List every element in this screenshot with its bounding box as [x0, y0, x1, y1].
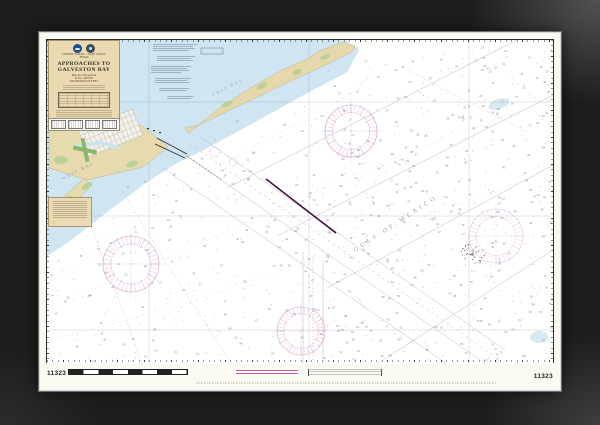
svg-text:15: 15	[200, 157, 203, 161]
svg-text:19: 19	[109, 241, 112, 245]
svg-text:62: 62	[400, 326, 403, 330]
svg-text:35: 35	[415, 145, 418, 149]
svg-text:38: 38	[280, 264, 283, 268]
svg-text:56: 56	[271, 351, 274, 355]
svg-text:43: 43	[362, 232, 365, 236]
svg-text:19: 19	[64, 300, 67, 304]
svg-text:23: 23	[179, 215, 182, 219]
svg-text:42: 42	[395, 190, 398, 194]
svg-text:27: 27	[492, 81, 495, 85]
svg-text:25: 25	[409, 80, 412, 84]
svg-text:53: 53	[313, 307, 316, 311]
svg-text:17: 17	[355, 46, 358, 50]
publication-note	[308, 369, 382, 376]
svg-text:31: 31	[141, 305, 144, 309]
svg-text:25: 25	[111, 285, 114, 289]
svg-text:17: 17	[365, 60, 368, 64]
svg-text:21: 21	[504, 49, 507, 53]
svg-text:44: 44	[543, 195, 546, 199]
svg-text:65: 65	[381, 354, 384, 358]
svg-text:32: 32	[267, 224, 270, 228]
svg-text:70: 70	[465, 351, 468, 355]
svg-text:34: 34	[278, 245, 281, 249]
svg-text:26: 26	[145, 248, 148, 252]
svg-text:41: 41	[523, 171, 526, 175]
svg-text:49: 49	[268, 307, 271, 311]
svg-text:62: 62	[340, 350, 343, 354]
svg-text:40: 40	[502, 166, 505, 170]
svg-text:53: 53	[386, 258, 389, 262]
svg-text:29: 29	[245, 228, 248, 232]
svg-text:45: 45	[421, 189, 424, 193]
svg-text:34: 34	[424, 134, 427, 138]
svg-text:30: 30	[357, 148, 360, 152]
svg-text:68: 68	[434, 325, 437, 329]
svg-text:59: 59	[387, 317, 390, 321]
svg-text:65: 65	[379, 339, 382, 343]
svg-text:58: 58	[453, 294, 456, 298]
svg-text:50: 50	[433, 217, 436, 221]
svg-text:30: 30	[103, 337, 106, 341]
svg-text:37: 37	[220, 263, 223, 267]
svg-text:38: 38	[326, 218, 329, 222]
svg-text:31: 31	[522, 85, 525, 89]
svg-text:42: 42	[224, 313, 227, 317]
svg-text:55: 55	[391, 267, 394, 271]
svg-text:47: 47	[255, 318, 258, 322]
svg-text:38: 38	[501, 138, 504, 142]
svg-text:39: 39	[285, 237, 288, 241]
svg-text:58: 58	[382, 295, 385, 299]
svg-text:51: 51	[328, 306, 331, 310]
svg-text:36: 36	[328, 203, 331, 207]
svg-text:42: 42	[425, 190, 428, 194]
svg-text:32: 32	[100, 332, 103, 336]
tide-diagram-box	[68, 120, 83, 129]
svg-text:35: 35	[491, 130, 494, 134]
chart-number-left: 11323	[47, 370, 66, 377]
svg-text:33: 33	[236, 237, 239, 241]
svg-text:37: 37	[224, 299, 227, 303]
svg-text:35: 35	[122, 343, 125, 347]
svg-text:63: 63	[480, 319, 483, 323]
svg-text:37: 37	[408, 169, 411, 173]
svg-text:26: 26	[483, 64, 486, 68]
svg-text:21: 21	[246, 157, 249, 161]
svg-text:21: 21	[134, 230, 137, 234]
svg-text:64: 64	[519, 318, 522, 322]
chart-number-right: 11323	[534, 373, 553, 380]
svg-text:61: 61	[545, 285, 548, 289]
svg-text:40: 40	[398, 163, 401, 167]
svg-text:33: 33	[192, 271, 195, 275]
svg-text:36: 36	[366, 139, 369, 143]
svg-text:38: 38	[542, 145, 545, 149]
svg-text:29: 29	[546, 70, 549, 74]
svg-text:35: 35	[345, 193, 348, 197]
svg-text:41: 41	[396, 183, 399, 187]
svg-text:17: 17	[50, 274, 53, 278]
svg-text:37: 37	[265, 230, 268, 234]
svg-text:50: 50	[293, 312, 296, 316]
svg-text:25: 25	[481, 68, 484, 72]
border-ticks-right	[551, 40, 553, 362]
svg-text:47: 47	[361, 219, 364, 223]
svg-text:37: 37	[390, 179, 393, 183]
svg-text:29: 29	[241, 240, 244, 244]
svg-text:25: 25	[455, 65, 458, 69]
svg-text:37: 37	[415, 153, 418, 157]
svg-text:58: 58	[421, 269, 424, 273]
svg-text:62: 62	[529, 310, 532, 314]
svg-text:29: 29	[480, 119, 483, 123]
svg-text:33: 33	[199, 283, 202, 287]
svg-text:19: 19	[249, 169, 252, 173]
svg-text:59: 59	[498, 269, 501, 273]
svg-text:37: 37	[182, 288, 185, 292]
svg-text:20: 20	[55, 312, 58, 316]
svg-text:30: 30	[309, 191, 312, 195]
svg-text:28: 28	[428, 76, 431, 80]
svg-text:41: 41	[469, 192, 472, 196]
svg-text:40: 40	[154, 349, 157, 353]
svg-text:28: 28	[305, 153, 308, 157]
svg-text:39: 39	[243, 279, 246, 283]
svg-text:44: 44	[531, 200, 534, 204]
svg-text:62: 62	[440, 326, 443, 330]
svg-text:33: 33	[308, 195, 311, 199]
svg-text:47: 47	[462, 232, 465, 236]
svg-text:27: 27	[386, 109, 389, 113]
svg-text:47: 47	[452, 203, 455, 207]
svg-text:60: 60	[341, 328, 344, 332]
chart-neatline: 4538652224323565226128222718426265325935…	[46, 39, 554, 363]
svg-text:17: 17	[338, 92, 341, 96]
svg-text:36: 36	[379, 138, 382, 142]
svg-text:23: 23	[252, 151, 255, 155]
svg-text:19: 19	[221, 169, 224, 173]
svg-text:18: 18	[152, 193, 155, 197]
margin-note-text	[53, 201, 87, 218]
svg-text:30: 30	[446, 117, 449, 121]
svg-text:37: 37	[359, 162, 362, 166]
svg-text:21: 21	[190, 187, 193, 191]
svg-text:27: 27	[159, 281, 162, 285]
svg-text:53: 53	[495, 240, 498, 244]
svg-text:29: 29	[536, 76, 539, 80]
svg-text:55: 55	[453, 274, 456, 278]
svg-text:61: 61	[357, 349, 360, 353]
svg-text:23: 23	[402, 65, 405, 69]
svg-text:33: 33	[355, 176, 358, 180]
svg-text:18: 18	[223, 174, 226, 178]
svg-text:29: 29	[348, 141, 351, 145]
svg-text:55: 55	[344, 314, 347, 318]
svg-text:71: 71	[491, 342, 494, 346]
svg-text:58: 58	[530, 295, 533, 299]
svg-text:54: 54	[320, 332, 323, 336]
svg-text:46: 46	[350, 255, 353, 259]
svg-text:56: 56	[351, 330, 354, 334]
svg-text:46: 46	[498, 196, 501, 200]
svg-text:43: 43	[327, 231, 330, 235]
svg-text:42: 42	[458, 179, 461, 183]
commerce-seal-icon	[86, 44, 95, 53]
svg-text:32: 32	[451, 113, 454, 117]
tide-diagram-box	[102, 120, 117, 129]
svg-text:35: 35	[416, 133, 419, 137]
svg-text:30: 30	[342, 156, 345, 160]
svg-text:15: 15	[80, 254, 83, 258]
svg-text:24: 24	[405, 95, 408, 99]
svg-text:38: 38	[391, 152, 394, 156]
svg-text:44: 44	[445, 196, 448, 200]
svg-text:58: 58	[414, 276, 417, 280]
svg-text:34: 34	[472, 126, 475, 130]
svg-text:35: 35	[394, 161, 397, 165]
svg-text:25: 25	[479, 94, 482, 98]
svg-text:37: 37	[304, 238, 307, 242]
agency-logos	[49, 44, 119, 53]
svg-text:23: 23	[151, 226, 154, 230]
svg-text:33: 33	[395, 120, 398, 124]
svg-text:32: 32	[485, 125, 488, 129]
svg-text:27: 27	[349, 117, 352, 121]
svg-text:53: 53	[317, 308, 320, 312]
svg-text:57: 57	[427, 263, 430, 267]
svg-text:53: 53	[398, 248, 401, 252]
svg-text:35: 35	[404, 145, 407, 149]
svg-text:11: 11	[126, 185, 129, 189]
svg-text:65: 65	[488, 323, 491, 327]
svg-text:48: 48	[343, 272, 346, 276]
svg-text:45: 45	[450, 209, 453, 213]
svg-text:45: 45	[229, 327, 232, 331]
svg-text:20: 20	[66, 295, 69, 299]
svg-text:34: 34	[491, 110, 494, 114]
svg-text:26: 26	[377, 75, 380, 79]
svg-text:40: 40	[152, 338, 155, 342]
tide-diagram-panel	[48, 118, 120, 131]
svg-text:40: 40	[288, 263, 291, 267]
svg-text:59: 59	[459, 283, 462, 287]
svg-text:37: 37	[132, 337, 135, 341]
svg-text:37: 37	[331, 213, 334, 217]
svg-text:35: 35	[406, 159, 409, 163]
svg-text:22: 22	[394, 68, 397, 72]
svg-text:33: 33	[410, 129, 413, 133]
svg-text:30: 30	[511, 101, 514, 105]
svg-text:25: 25	[231, 182, 234, 186]
svg-text:23: 23	[481, 46, 484, 50]
svg-text:28: 28	[343, 128, 346, 132]
svg-text:59: 59	[449, 291, 452, 295]
svg-text:42: 42	[414, 181, 417, 185]
svg-text:45: 45	[403, 187, 406, 191]
svg-text:24: 24	[482, 56, 485, 60]
svg-text:64: 64	[532, 302, 535, 306]
svg-text:14: 14	[51, 293, 54, 297]
svg-text:43: 43	[174, 350, 177, 354]
svg-text:23: 23	[494, 66, 497, 70]
svg-text:59: 59	[352, 338, 355, 342]
svg-text:50: 50	[235, 336, 238, 340]
svg-text:49: 49	[436, 222, 439, 226]
svg-text:56: 56	[478, 261, 481, 265]
svg-text:33: 33	[542, 114, 545, 118]
svg-text:17: 17	[133, 225, 136, 229]
chart-map: 4538652224323565226128222718426265325935…	[47, 40, 553, 364]
svg-text:56: 56	[507, 251, 510, 255]
svg-text:64: 64	[483, 297, 486, 301]
svg-text:45: 45	[529, 188, 532, 192]
svg-text:60: 60	[411, 283, 414, 287]
svg-text:47: 47	[196, 352, 199, 356]
margin-note-box	[48, 197, 92, 227]
svg-text:30: 30	[397, 96, 400, 100]
svg-text:19: 19	[440, 58, 443, 62]
svg-text:44: 44	[304, 270, 307, 274]
svg-text:53: 53	[348, 289, 351, 293]
svg-text:32: 32	[462, 117, 465, 121]
svg-text:56: 56	[503, 241, 506, 245]
svg-text:63: 63	[498, 319, 501, 323]
svg-text:33: 33	[295, 183, 298, 187]
svg-text:29: 29	[543, 80, 546, 84]
svg-text:49: 49	[461, 223, 464, 227]
svg-text:41: 41	[144, 354, 147, 358]
svg-text:45: 45	[370, 213, 373, 217]
svg-text:46: 46	[416, 224, 419, 228]
svg-text:39: 39	[349, 203, 352, 207]
svg-text:21: 21	[528, 56, 531, 60]
svg-text:21: 21	[167, 218, 170, 222]
svg-text:38: 38	[410, 150, 413, 154]
svg-text:22: 22	[321, 114, 324, 118]
svg-text:13: 13	[173, 173, 176, 177]
border-ticks-bottom	[47, 360, 553, 362]
noaa-logo-icon	[73, 44, 82, 53]
tide-diagram-box	[51, 120, 66, 129]
svg-text:43: 43	[410, 185, 413, 189]
svg-text:47: 47	[438, 230, 441, 234]
svg-text:40: 40	[401, 158, 404, 162]
scale-bar	[68, 369, 188, 375]
svg-text:30: 30	[341, 173, 344, 177]
svg-text:18: 18	[175, 199, 178, 203]
svg-text:23: 23	[540, 65, 543, 69]
svg-text:43: 43	[349, 236, 352, 240]
svg-text:32: 32	[100, 321, 103, 325]
svg-text:27: 27	[468, 88, 471, 92]
svg-text:37: 37	[292, 215, 295, 219]
svg-text:45: 45	[525, 178, 528, 182]
svg-text:65: 65	[511, 328, 514, 332]
state-line: TEXAS	[49, 56, 119, 59]
svg-text:45: 45	[377, 214, 380, 218]
svg-text:30: 30	[301, 199, 304, 203]
svg-text:22: 22	[301, 129, 304, 133]
svg-text:56: 56	[470, 280, 473, 284]
svg-text:38: 38	[153, 327, 156, 331]
svg-text:66: 66	[539, 310, 542, 314]
svg-text:31: 31	[470, 116, 473, 120]
svg-text:55: 55	[396, 258, 399, 262]
svg-text:69: 69	[522, 354, 525, 358]
chart-paper: 4538652224323565226128222718426265325935…	[40, 33, 560, 390]
svg-text:28: 28	[144, 264, 147, 268]
svg-text:38: 38	[445, 164, 448, 168]
svg-text:13: 13	[97, 247, 100, 251]
svg-text:42: 42	[407, 199, 410, 203]
svg-text:47: 47	[537, 193, 540, 197]
svg-text:29: 29	[482, 104, 485, 108]
tide-diagram-box	[85, 120, 100, 129]
svg-text:48: 48	[367, 251, 370, 255]
svg-text:45: 45	[500, 216, 503, 220]
svg-text:40: 40	[372, 201, 375, 205]
svg-text:41: 41	[308, 257, 311, 261]
svg-text:11: 11	[236, 119, 239, 123]
svg-text:48: 48	[514, 209, 517, 213]
svg-text:61: 61	[365, 324, 368, 328]
svg-text:37: 37	[273, 264, 276, 268]
soundings-line: SOUNDINGS IN FEET	[49, 80, 119, 83]
svg-text:48: 48	[325, 260, 328, 264]
svg-text:21: 21	[117, 262, 120, 266]
svg-text:31: 31	[171, 259, 174, 263]
svg-text:45: 45	[458, 211, 461, 215]
svg-text:26: 26	[250, 216, 253, 220]
svg-text:47: 47	[311, 278, 314, 282]
svg-text:40: 40	[446, 156, 449, 160]
svg-text:45: 45	[468, 178, 471, 182]
svg-text:41: 41	[326, 254, 329, 258]
svg-text:38: 38	[339, 184, 342, 188]
svg-text:19: 19	[333, 84, 336, 88]
svg-text:42: 42	[371, 195, 374, 199]
svg-text:39: 39	[450, 143, 453, 147]
svg-text:49: 49	[542, 235, 545, 239]
svg-text:35: 35	[357, 155, 360, 159]
svg-text:31: 31	[313, 198, 316, 202]
svg-text:11: 11	[144, 180, 147, 184]
svg-text:65: 65	[398, 338, 401, 342]
svg-text:33: 33	[463, 105, 466, 109]
svg-text:48: 48	[239, 341, 242, 345]
svg-text:22: 22	[343, 109, 346, 113]
svg-text:37: 37	[529, 123, 532, 127]
svg-text:23: 23	[124, 272, 127, 276]
svg-text:20: 20	[283, 123, 286, 127]
svg-text:46: 46	[387, 204, 390, 208]
svg-text:20: 20	[169, 225, 172, 229]
svg-text:36: 36	[412, 164, 415, 168]
svg-text:23: 23	[247, 177, 250, 181]
bottom-margin: 11323 11323	[46, 364, 554, 388]
svg-text:18: 18	[104, 271, 107, 275]
svg-text:61: 61	[356, 325, 359, 329]
svg-text:65: 65	[505, 330, 508, 334]
svg-text:62: 62	[370, 328, 373, 332]
svg-text:31: 31	[467, 105, 470, 109]
svg-text:38: 38	[464, 160, 467, 164]
framed-nautical-chart-photo: 4538652224323565226128222718426265325935…	[0, 0, 600, 425]
svg-text:60: 60	[346, 341, 349, 345]
svg-text:60: 60	[490, 275, 493, 279]
svg-text:27: 27	[515, 95, 518, 99]
svg-text:47: 47	[498, 202, 501, 206]
